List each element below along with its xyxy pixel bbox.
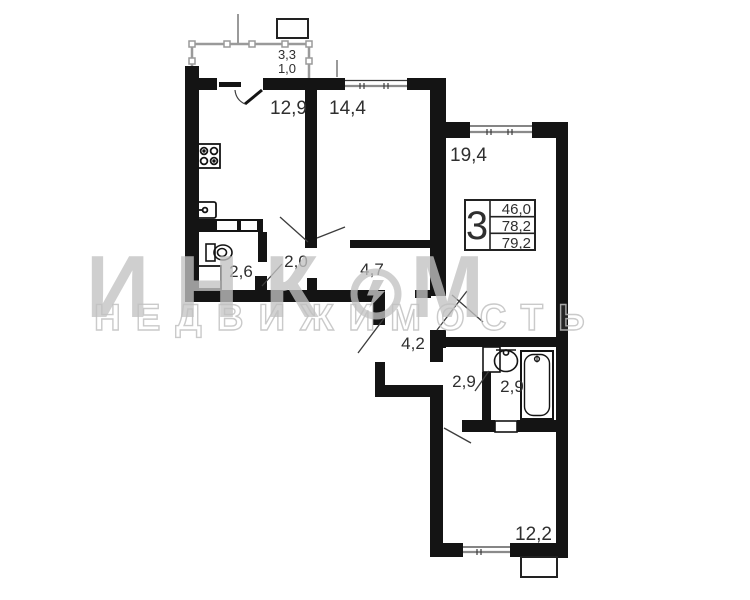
floor-plan-drawing: 3 46,0 78,2 79,2 3,3 1,0 12,9 14,4 19,4 … — [0, 0, 750, 600]
washing-machine-icon — [197, 266, 221, 289]
wall-segment — [415, 290, 431, 298]
room-label-wc: 2,6 — [229, 262, 253, 281]
floor-plan-page: 3 46,0 78,2 79,2 3,3 1,0 12,9 14,4 19,4 … — [0, 0, 750, 600]
room-label-corridor: 4,7 — [360, 260, 384, 279]
wall-segment — [185, 290, 385, 302]
room-label-bedroom1: 14,4 — [329, 98, 366, 119]
room-label-lobby: 2,9 — [452, 372, 476, 391]
wall-segment — [437, 122, 470, 138]
wall-segment — [517, 420, 568, 432]
legend-rooms-count: 3 — [466, 204, 488, 248]
legend-living-area: 46,0 — [502, 201, 531, 218]
wall-segment — [199, 78, 217, 90]
wall-segment — [317, 78, 345, 90]
legend-total-area: 79,2 — [502, 235, 531, 252]
wardrobe-bar — [217, 221, 257, 230]
window-living — [470, 122, 532, 138]
room-label-bedroom2: 12,2 — [515, 524, 552, 545]
wall-segment — [263, 78, 317, 90]
room-label-kitchen: 12,9 — [270, 98, 307, 119]
wall-segment — [430, 78, 446, 296]
wall-segment — [430, 543, 463, 557]
toilet-icon — [206, 244, 232, 261]
bathtub-icon — [521, 351, 553, 419]
legend-table: 3 46,0 78,2 79,2 — [465, 200, 535, 252]
wall-segment — [430, 385, 443, 557]
room-label-living: 19,4 — [450, 145, 487, 166]
stove-icon — [197, 144, 220, 168]
wall-segment — [433, 337, 568, 347]
room-label-hall: 2,0 — [284, 252, 308, 271]
window-bedroom2 — [463, 543, 510, 557]
balcony-area-lower: 1,0 — [278, 61, 296, 76]
room-label-bathroom: 2,9 — [500, 377, 524, 396]
room-label-hallway: 4,2 — [401, 334, 425, 353]
window-bedroom1 — [345, 78, 407, 90]
lower-balcony-box — [521, 557, 557, 577]
wall-segment — [350, 240, 436, 248]
wall-segment — [510, 543, 568, 557]
wall-segment — [462, 420, 495, 432]
door-swing-lines — [262, 217, 489, 443]
bathroom-threshold — [495, 421, 517, 432]
balcony-area-upper: 3,3 — [278, 47, 296, 62]
legend-floor-area: 78,2 — [502, 218, 531, 235]
wall-segment — [373, 302, 385, 325]
wall-segment — [258, 232, 267, 262]
balcony-railing — [192, 14, 337, 78]
wall-segment — [407, 78, 433, 90]
roof-box — [277, 19, 308, 38]
wall-segment — [307, 278, 317, 292]
walls-group — [185, 66, 568, 558]
window-kitchen-balcony-door — [217, 78, 263, 104]
